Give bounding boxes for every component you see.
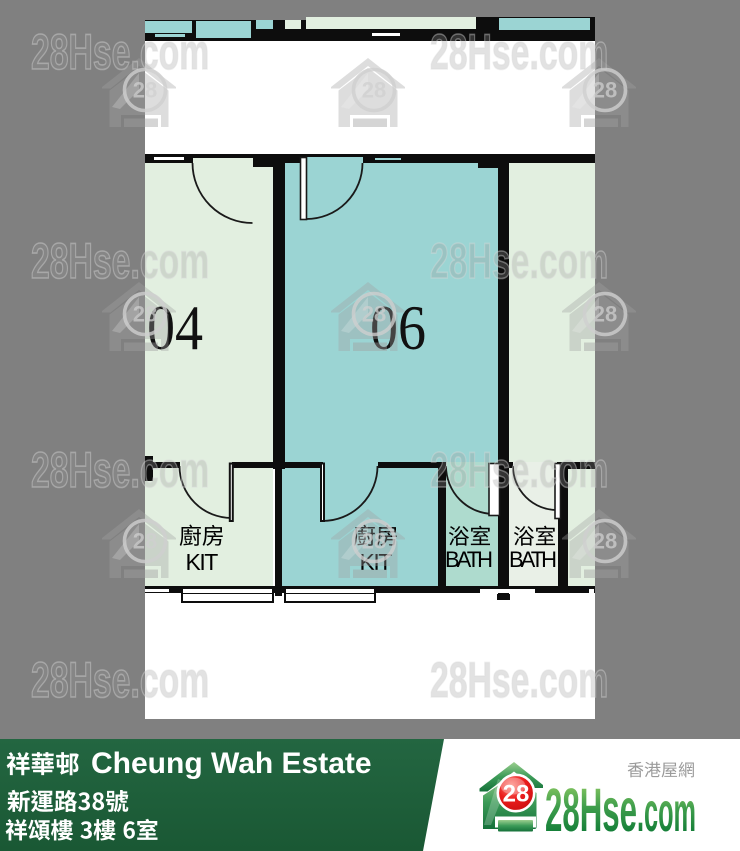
svg-text:28: 28 [593,78,617,103]
svg-text:28: 28 [362,529,386,554]
svg-text:28: 28 [593,529,617,554]
svg-text:28: 28 [133,529,157,554]
svg-text:28: 28 [362,302,386,327]
svg-text:28: 28 [362,78,386,103]
svg-text:28: 28 [133,302,157,327]
svg-text:28: 28 [593,302,617,327]
svg-text:28: 28 [502,781,529,808]
svg-text:28Hse: 28Hse [545,783,637,835]
svg-text:.com: .com [637,783,696,835]
svg-text:28: 28 [133,78,157,103]
